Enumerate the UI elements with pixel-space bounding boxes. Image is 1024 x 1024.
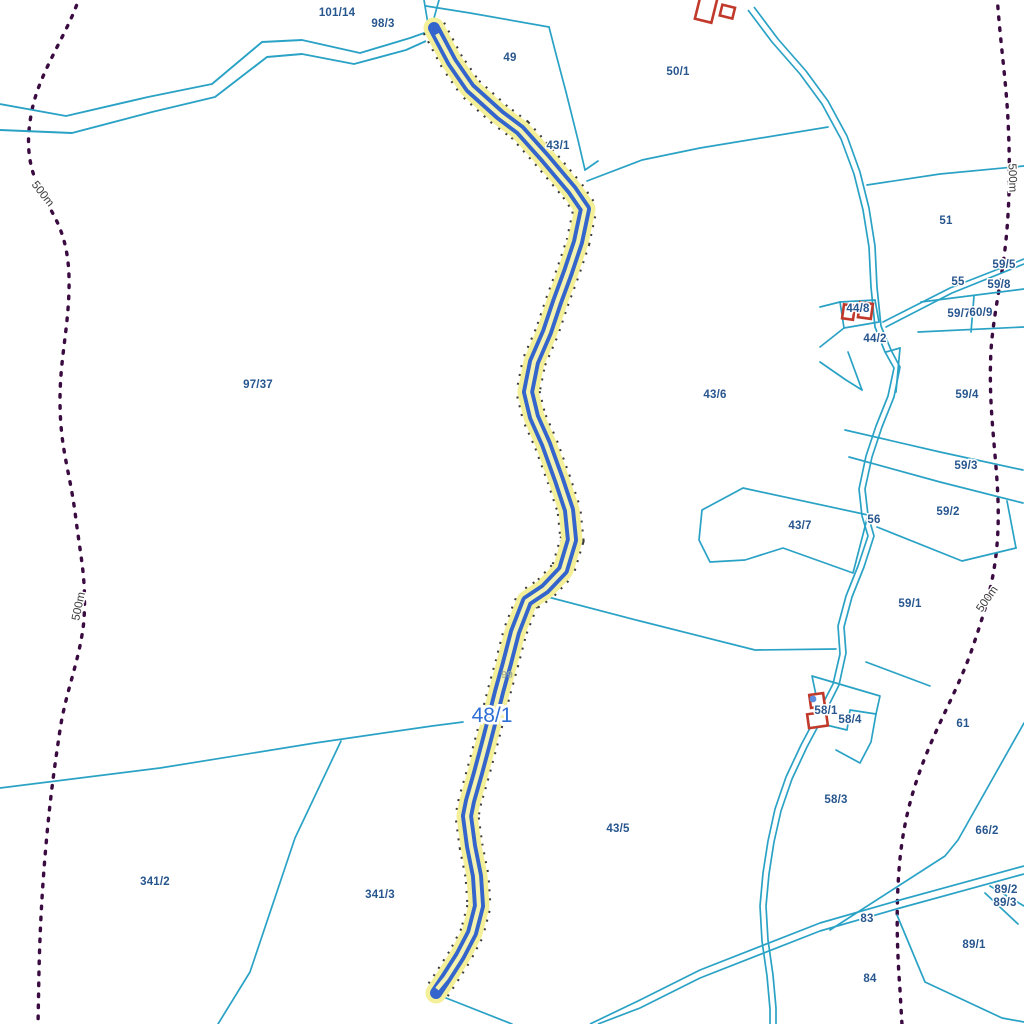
- parcel-label-99-muted: 99: [501, 669, 513, 681]
- selected-parcel-highlight[interactable]: [434, 28, 585, 993]
- parcel-label-58-3[interactable]: 58/3: [824, 794, 847, 806]
- parcel-label-49[interactable]: 49: [503, 52, 516, 64]
- parcel-label-98-3[interactable]: 98/3: [371, 18, 394, 30]
- contour-elevation-label-3: 500m: [974, 584, 1000, 614]
- contour-elevation-label-1: 500m: [70, 591, 88, 622]
- parcel-label-84[interactable]: 84: [863, 973, 877, 985]
- survey-point-dot: [810, 696, 817, 703]
- parcel-label-58-4[interactable]: 58/4: [838, 714, 862, 726]
- parcel-label-60-9[interactable]: 60/9: [969, 307, 992, 319]
- parcel-label-97-37[interactable]: 97/37: [243, 379, 273, 391]
- parcel-label-43-7[interactable]: 43/7: [788, 520, 811, 532]
- parcel-label-43-1[interactable]: 43/1: [546, 140, 570, 152]
- parcel-label-55[interactable]: 55: [951, 276, 965, 288]
- parcel-label-layer: 101/1498/34950/143/15159/55559/859/760/9…: [140, 7, 1017, 985]
- parcel-label-59-7[interactable]: 59/7: [947, 308, 970, 320]
- hidden-parcel-label-layer: 99: [501, 669, 513, 681]
- building-icon: [720, 5, 735, 19]
- parcel-label-44-8[interactable]: 44/8: [846, 303, 870, 315]
- parcel-label-341-2[interactable]: 341/2: [140, 876, 170, 888]
- contour-line-left: [29, 0, 85, 1024]
- selected-parcel-label-layer: 48/1: [472, 704, 513, 727]
- parcel-label-66-2[interactable]: 66/2: [975, 825, 998, 837]
- parcel-label-50-1[interactable]: 50/1: [666, 66, 690, 78]
- parcel-label-59-3[interactable]: 59/3: [954, 460, 977, 472]
- parcel-label-59-2[interactable]: 59/2: [936, 506, 959, 518]
- parcel-label-59-5[interactable]: 59/5: [992, 259, 1016, 271]
- parcel-label-43-5[interactable]: 43/5: [606, 823, 630, 835]
- contour-elevation-label-2: 500m: [1005, 163, 1018, 192]
- contour-elevation-label-0: 500m: [29, 179, 56, 209]
- parcel-boundary-lines: [0, 0, 1024, 1024]
- cadastral-map-canvas[interactable]: 99 101/1498/34950/143/15159/55559/859/76…: [0, 0, 1024, 1024]
- parcel-label-59-8[interactable]: 59/8: [987, 279, 1011, 291]
- map-viewport[interactable]: 99 101/1498/34950/143/15159/55559/859/76…: [0, 0, 1024, 1024]
- parcel-label-58-1[interactable]: 58/1: [814, 705, 838, 717]
- building-icon: [695, 0, 718, 23]
- parcel-label-83[interactable]: 83: [860, 913, 873, 925]
- parcel-label-101-14[interactable]: 101/14: [319, 7, 356, 19]
- selected-parcel-label[interactable]: 48/1: [472, 704, 513, 727]
- parcel-label-89-2[interactable]: 89/2: [994, 884, 1017, 896]
- parcel-label-341-3[interactable]: 341/3: [365, 889, 395, 901]
- parcel-label-59-1[interactable]: 59/1: [898, 598, 922, 610]
- parcel-label-59-4[interactable]: 59/4: [955, 389, 979, 401]
- parcel-label-89-3[interactable]: 89/3: [993, 897, 1016, 909]
- parcel-label-56[interactable]: 56: [867, 514, 880, 526]
- parcel-label-43-6[interactable]: 43/6: [703, 389, 726, 401]
- road-83-line2: [598, 874, 1024, 1024]
- parcel-label-51[interactable]: 51: [939, 215, 953, 227]
- parcel-label-89-1[interactable]: 89/1: [962, 939, 986, 951]
- parcel-label-44-2[interactable]: 44/2: [863, 333, 886, 345]
- parcel-label-61[interactable]: 61: [956, 718, 970, 730]
